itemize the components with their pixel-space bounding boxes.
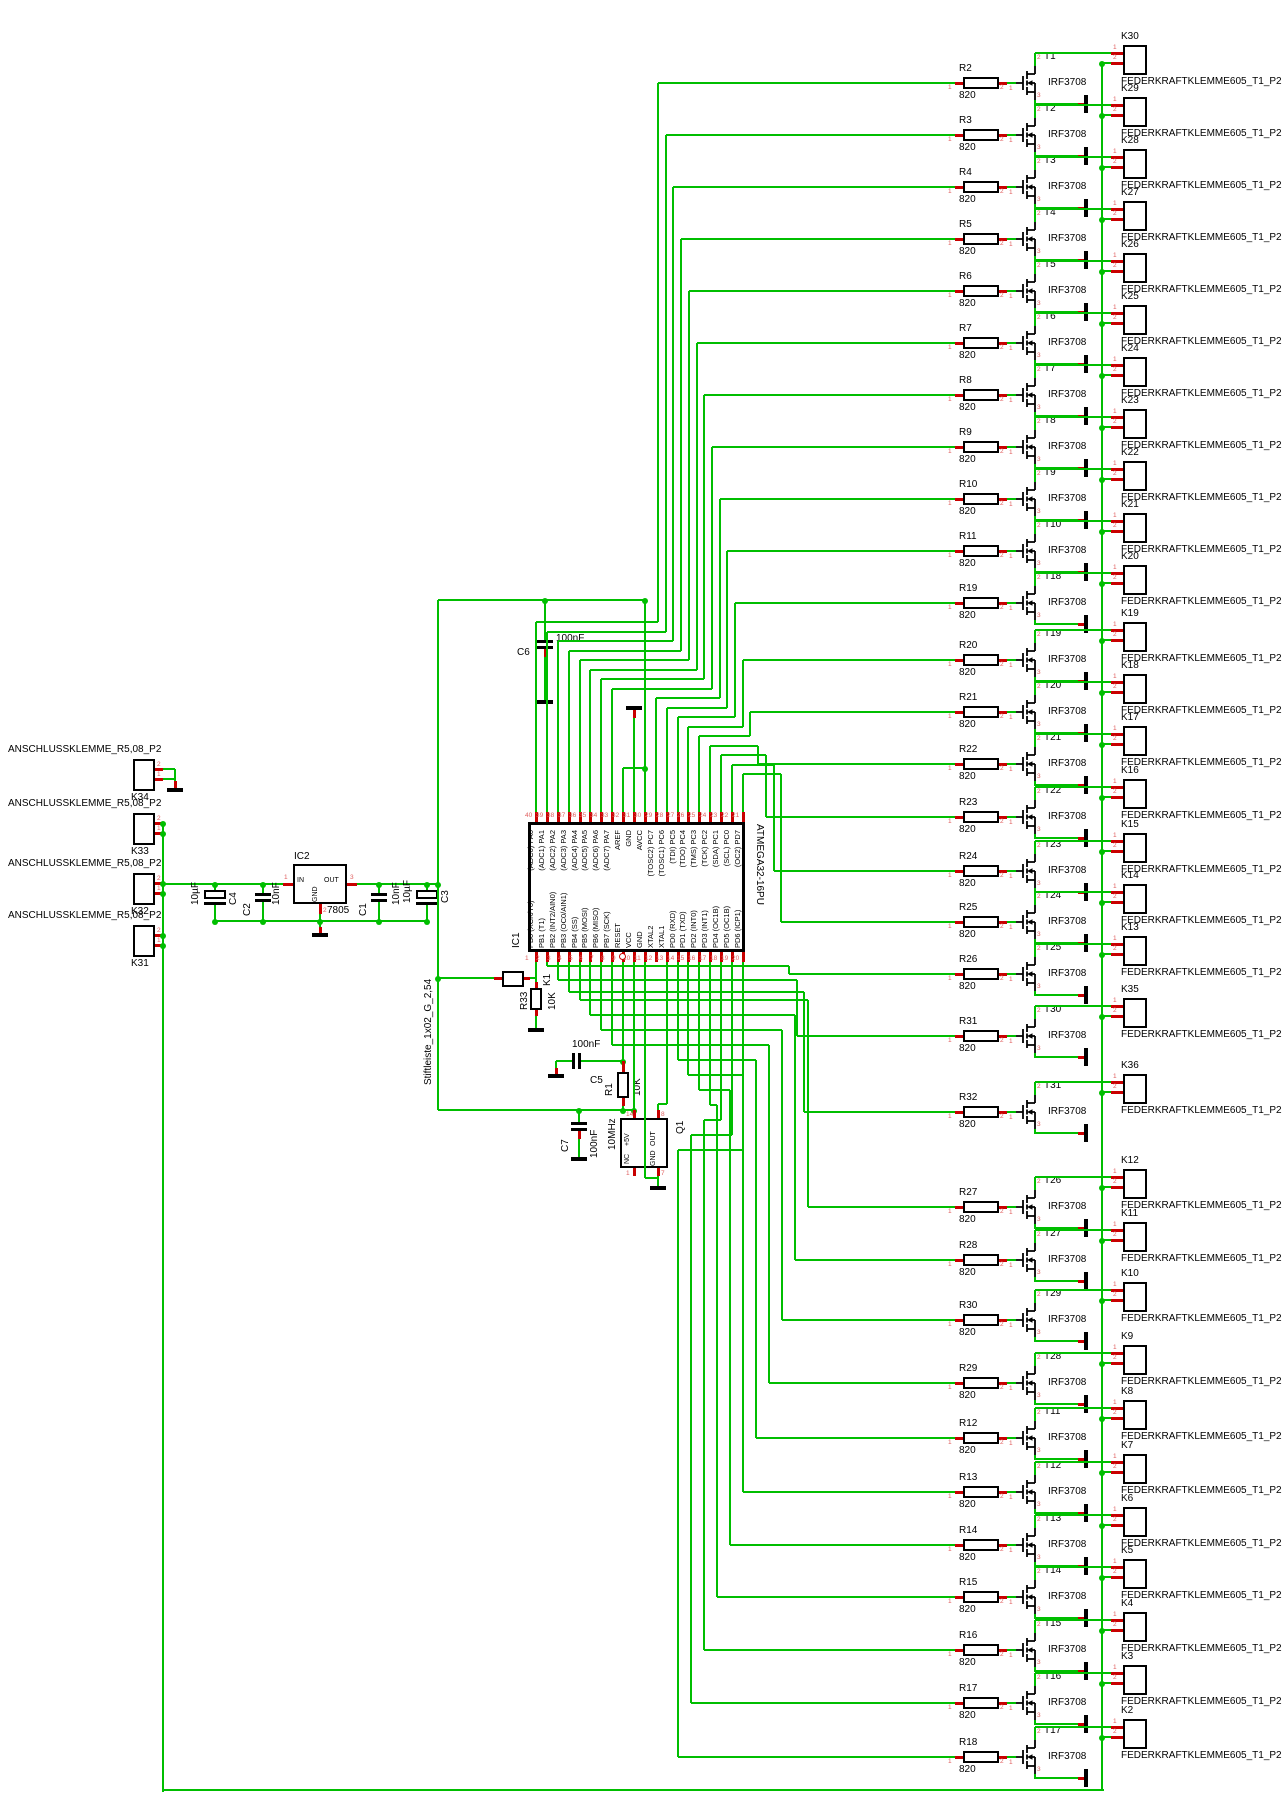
resistor-R19[interactable] (963, 597, 999, 609)
label: PB0 (XCK/T0) (527, 844, 535, 948)
pin-number: 1 (948, 136, 952, 143)
pin-number: 1 (1113, 408, 1117, 415)
pin-number: 2 (1000, 240, 1004, 247)
mosfet-T23[interactable] (1016, 854, 1046, 888)
pin-number: 1 (948, 1439, 952, 1446)
resistor-name: R32 (959, 1093, 977, 1103)
pin-number: 2 (1000, 1598, 1004, 1605)
wire-segment (1035, 733, 1111, 735)
mosfet-T1[interactable] (1016, 66, 1046, 100)
connector-K34[interactable] (133, 759, 155, 791)
pin-number: 1 (1009, 1209, 1013, 1216)
wire-segment (727, 550, 955, 552)
pin-stub (174, 781, 177, 788)
wire-segment (1034, 417, 1036, 430)
label: R1 (605, 1072, 615, 1096)
terminal-K18[interactable] (1123, 674, 1147, 704)
pin-number: 1 (1113, 148, 1117, 155)
junction-dot (1099, 1575, 1105, 1581)
wire-segment (1035, 1461, 1111, 1463)
mosfet-T27[interactable] (1016, 1243, 1046, 1277)
mosfet-T2[interactable] (1016, 118, 1046, 152)
terminal-name: K26 (1121, 240, 1139, 250)
resistor-R11[interactable] (963, 545, 999, 557)
resistor-R17[interactable] (963, 1697, 999, 1709)
pin-stub (1111, 850, 1123, 853)
pin-number: 2 (1113, 893, 1117, 900)
resistor-R8[interactable] (963, 389, 999, 401)
junction-dot (1099, 217, 1105, 223)
mosfet-T29[interactable] (1016, 1303, 1046, 1337)
pin-number: 1 (948, 818, 952, 825)
pin-number: 3 (1037, 773, 1041, 780)
pin-number: 1 (948, 292, 952, 299)
label: XTAL1 (658, 844, 666, 948)
label: PD6 (ICP1) (734, 844, 742, 948)
wire-segment (688, 1074, 743, 1076)
pin-number: 2 (1113, 945, 1117, 952)
mosfet-T10[interactable] (1016, 534, 1046, 568)
gnd-symbol (1084, 1450, 1088, 1468)
label: C4 (229, 879, 239, 905)
pin-number: 2 (1000, 1546, 1004, 1553)
wire-segment (1034, 469, 1036, 482)
terminal-K30[interactable] (1123, 45, 1147, 75)
label: 10MHz (608, 1110, 618, 1150)
wire-segment (1034, 1620, 1036, 1633)
wire-segment (704, 1119, 721, 1121)
pin-stub (657, 1110, 660, 1118)
resistor-R20[interactable] (963, 654, 999, 666)
wire-segment (656, 697, 720, 699)
resistor-R16[interactable] (963, 1644, 999, 1656)
resistor-name: R21 (959, 693, 977, 703)
terminal-K12[interactable] (1123, 1169, 1147, 1199)
terminal-K4[interactable] (1123, 1612, 1147, 1642)
junction-dot (1099, 1628, 1105, 1634)
pin-number: 2 (1037, 1621, 1041, 1628)
pin-number: 32 (612, 812, 619, 819)
mosfet-T13[interactable] (1016, 1528, 1046, 1562)
junction-dot (1099, 638, 1105, 644)
mosfet-T18[interactable] (1016, 586, 1046, 620)
header-k1[interactable] (502, 971, 524, 987)
terminal-K23[interactable] (1123, 409, 1147, 439)
pin-number: 1 (948, 1598, 952, 1605)
pin-number: 1 (1113, 1506, 1117, 1513)
pin-number: 3 (1037, 1554, 1041, 1561)
wire-segment (677, 962, 679, 1060)
pin-number: 2 (1000, 604, 1004, 611)
mosfet-T3[interactable] (1016, 170, 1046, 204)
terminal-K6[interactable] (1123, 1507, 1147, 1537)
wire-segment (696, 343, 698, 670)
pin-stub (1111, 530, 1123, 533)
resistor-R6[interactable] (963, 285, 999, 297)
resistor-R31[interactable] (963, 1030, 999, 1042)
resistor-R26[interactable] (963, 968, 999, 980)
resistor-name: R13 (959, 1473, 977, 1483)
junction-dot (1099, 373, 1105, 379)
pin-stub (1111, 1362, 1123, 1365)
label: 100nF (590, 1122, 600, 1158)
resistor-R14[interactable] (963, 1539, 999, 1551)
resistor-name: R29 (959, 1364, 977, 1374)
pin-number: 2 (1037, 631, 1041, 638)
terminal-K36[interactable] (1123, 1074, 1147, 1104)
terminal-package: FEDERKRAFTKLEMME605_T1_P2 (1121, 389, 1282, 399)
mosfet-T26[interactable] (1016, 1190, 1046, 1224)
mosfet-T12[interactable] (1016, 1475, 1046, 1509)
wire-segment (438, 977, 494, 979)
terminal-package: FEDERKRAFTKLEMME605_T1_P2 (1121, 1751, 1282, 1761)
pin-number: 1 (1113, 304, 1117, 311)
pin-stub (1111, 478, 1123, 481)
resistor-r1[interactable] (617, 1072, 629, 1098)
pin-number: 36 (569, 812, 576, 819)
terminal-K16[interactable] (1123, 779, 1147, 809)
resistor-R5[interactable] (963, 233, 999, 245)
pin-number: 2 (1000, 1261, 1004, 1268)
pin-number: 1 (1113, 1664, 1117, 1671)
wire-segment (1034, 157, 1036, 170)
wire-segment (680, 239, 682, 651)
resistor-R23[interactable] (963, 811, 999, 823)
wire-segment (557, 641, 559, 812)
resistor-R3[interactable] (963, 129, 999, 141)
wire-segment (1035, 786, 1111, 788)
terminal-package: FEDERKRAFTKLEMME605_T1_P2 (1121, 706, 1282, 716)
gnd-symbol (537, 700, 553, 704)
terminal-K3[interactable] (1123, 1665, 1147, 1695)
mosfet-T21[interactable] (1016, 747, 1046, 781)
resistor-R22[interactable] (963, 758, 999, 770)
pin-number: 1 (1009, 85, 1013, 92)
pin-stub (657, 1168, 660, 1176)
resistor-name: R22 (959, 745, 977, 755)
pin-number: 2 (1037, 683, 1041, 690)
terminal-K17[interactable] (1123, 726, 1147, 756)
pin-number: 18 (710, 955, 717, 962)
pin-number: 1 (948, 1113, 952, 1120)
wire-segment (699, 735, 750, 737)
resistor-R32[interactable] (963, 1106, 999, 1118)
wire-segment (1034, 1515, 1036, 1528)
pin-number: 1 (948, 344, 952, 351)
junction-dot (1099, 1298, 1105, 1304)
wire-segment (1034, 1353, 1036, 1366)
pin-number: 1 (948, 1758, 952, 1765)
connector-K33[interactable] (133, 813, 155, 845)
terminal-K25[interactable] (1123, 305, 1147, 335)
transistor-part: IRF3708 (1048, 1202, 1086, 1212)
terminal-package: FEDERKRAFTKLEMME605_T1_P2 (1121, 1106, 1282, 1116)
mosfet-T17[interactable] (1016, 1740, 1046, 1774)
resistor-name: R23 (959, 798, 977, 808)
wire-segment (749, 712, 751, 736)
wire-segment (437, 600, 439, 1110)
wire-segment (804, 1111, 955, 1113)
pin-number: 9 (612, 955, 616, 962)
mosfet-T5[interactable] (1016, 274, 1046, 308)
pin-number: 1 (948, 1493, 952, 1500)
resistor-R10[interactable] (963, 493, 999, 505)
wire-segment (730, 1544, 955, 1546)
pin-number: 2 (1113, 1231, 1117, 1238)
wire-segment (1035, 104, 1111, 106)
resistor-R18[interactable] (963, 1751, 999, 1763)
resistor-R21[interactable] (963, 706, 999, 718)
pin-number: 1 (948, 923, 952, 930)
resistor-R13[interactable] (963, 1486, 999, 1498)
wire-segment (1035, 1056, 1078, 1058)
terminal-K11[interactable] (1123, 1222, 1147, 1252)
mosfet-T31[interactable] (1016, 1095, 1046, 1129)
wire-segment (1035, 1340, 1078, 1342)
pin-stub (955, 659, 963, 662)
regulator-ic2[interactable] (293, 864, 347, 904)
pin-number: 3 (1037, 1269, 1041, 1276)
terminal-package: FEDERKRAFTKLEMME605_T1_P2 (1121, 1314, 1282, 1324)
resistor-R7[interactable] (963, 337, 999, 349)
pin-number: 2 (1037, 945, 1041, 952)
junction-dot (1099, 1470, 1105, 1476)
pin-number: 2 (1000, 1651, 1004, 1658)
terminal-K28[interactable] (1123, 149, 1147, 179)
pin-stub (1111, 743, 1123, 746)
terminal-K22[interactable] (1123, 461, 1147, 491)
terminal-name: K28 (1121, 136, 1139, 146)
mosfet-T30[interactable] (1016, 1019, 1046, 1053)
wire-segment (1034, 1290, 1036, 1303)
wire-segment (766, 816, 955, 818)
wire-segment (547, 965, 789, 967)
terminal-K10[interactable] (1123, 1282, 1147, 1312)
gnd-symbol (1084, 1609, 1088, 1627)
wire-segment (672, 187, 674, 641)
connector-package-label: ANSCHLUSSKLEMME_R5,08_P2 (8, 745, 161, 755)
pin-number: 30 (634, 812, 641, 819)
mosfet-T22[interactable] (1016, 800, 1046, 834)
terminal-K21[interactable] (1123, 513, 1147, 543)
terminal-K15[interactable] (1123, 833, 1147, 863)
pin-number: 3 (1037, 880, 1041, 887)
pin-number: 37 (558, 812, 565, 819)
resistor-R15[interactable] (963, 1591, 999, 1603)
pin-number: 13 (656, 955, 663, 962)
terminal-K24[interactable] (1123, 357, 1147, 387)
pin-number: 1 (1113, 673, 1117, 680)
resistor-name: R27 (959, 1188, 977, 1198)
resistor-R12[interactable] (963, 1432, 999, 1444)
pin-number: 1 (1113, 1221, 1117, 1228)
pin-number: 3 (1037, 1447, 1041, 1454)
mosfet-T11[interactable] (1016, 1421, 1046, 1455)
transistor-part: IRF3708 (1048, 1540, 1086, 1550)
wire-segment (794, 1015, 796, 1260)
pin-stub (955, 921, 963, 924)
pin-number: 2 (1113, 262, 1117, 269)
pin-number: 3 (1037, 1045, 1041, 1052)
pin-number: 20 (732, 955, 739, 962)
mosfet-T9[interactable] (1016, 482, 1046, 516)
wire-segment (703, 1120, 705, 1650)
wire-segment (535, 962, 537, 982)
terminal-K27[interactable] (1123, 201, 1147, 231)
wire-segment (720, 498, 955, 500)
resistor-name: R16 (959, 1631, 977, 1641)
mosfet-T20[interactable] (1016, 695, 1046, 729)
regulator-value: 7805 (327, 906, 349, 916)
wire-segment (742, 660, 744, 727)
wire-segment (611, 689, 613, 812)
pin-number: 2 (1113, 1568, 1117, 1575)
wire-segment (1007, 1756, 1016, 1758)
pin-number: 3 (1037, 1659, 1041, 1666)
label: Q1 (676, 1116, 686, 1134)
mosfet-T16[interactable] (1016, 1686, 1046, 1720)
terminal-K7[interactable] (1123, 1454, 1147, 1484)
pin-number: 1 (948, 1651, 952, 1658)
pin-number: 2 (1000, 923, 1004, 930)
pin-number: 1 (1113, 96, 1117, 103)
wire-segment (688, 291, 690, 660)
resistor-R27[interactable] (963, 1201, 999, 1213)
transistor-part: IRF3708 (1048, 1378, 1086, 1388)
wire-segment (1007, 711, 1016, 713)
pin-number: 2 (1037, 1516, 1041, 1523)
junction-dot (160, 943, 166, 949)
mosfet-T24[interactable] (1016, 905, 1046, 939)
terminal-name: K14 (1121, 871, 1139, 881)
pin-number: 2 (1000, 136, 1004, 143)
resistor-R24[interactable] (963, 865, 999, 877)
junction-dot (435, 976, 441, 982)
resistor-R30[interactable] (963, 1314, 999, 1326)
resistor-R29[interactable] (963, 1377, 999, 1389)
mosfet-T14[interactable] (1016, 1580, 1046, 1614)
resistor-R28[interactable] (963, 1254, 999, 1266)
pin-stub (955, 394, 963, 397)
resistor-R9[interactable] (963, 441, 999, 453)
mosfet-T7[interactable] (1016, 378, 1046, 412)
resistor-name: R26 (959, 955, 977, 965)
terminal-name: K19 (1121, 609, 1139, 619)
wire-segment (1007, 186, 1016, 188)
label: PB6 (MISO) (592, 844, 600, 948)
pin-number: 3 (1037, 826, 1041, 833)
wire-segment (699, 1089, 730, 1091)
resistor-R25[interactable] (963, 916, 999, 928)
pin-number: 2 (1037, 1674, 1041, 1681)
pin-number: 1 (948, 240, 952, 247)
terminal-K5[interactable] (1123, 1559, 1147, 1589)
wire-segment (601, 1029, 782, 1031)
terminal-package: FEDERKRAFTKLEMME605_T1_P2 (1121, 1591, 1282, 1601)
terminal-K13[interactable] (1123, 936, 1147, 966)
terminal-K19[interactable] (1123, 622, 1147, 652)
junction-dot (160, 831, 166, 837)
pin-number: 2 (157, 761, 161, 768)
wire-segment (1035, 681, 1111, 683)
gnd-symbol (1084, 1395, 1088, 1413)
pin-number: 3 (1037, 300, 1041, 307)
terminal-K35[interactable] (1123, 998, 1147, 1028)
wire-segment (808, 1206, 955, 1208)
pin-number: 2 (1037, 1354, 1041, 1361)
terminal-K14[interactable] (1123, 884, 1147, 914)
pin-stub (1111, 953, 1123, 956)
wire-segment (1035, 208, 1111, 210)
capacitor[interactable] (204, 890, 226, 899)
mosfet-T8[interactable] (1016, 430, 1046, 464)
mosfet-T19[interactable] (1016, 643, 1046, 677)
pin-stub (955, 763, 963, 766)
resistor-value: 820 (959, 455, 976, 465)
terminal-K26[interactable] (1123, 253, 1147, 283)
mosfet-T28[interactable] (1016, 1366, 1046, 1400)
pin-number: 8 (661, 1111, 665, 1118)
connector-K31[interactable] (133, 925, 155, 957)
pin-number: 1 (948, 1321, 952, 1328)
wire-segment (1007, 602, 1016, 604)
mosfet-T25[interactable] (1016, 957, 1046, 991)
terminal-name: K4 (1121, 1599, 1133, 1609)
wire-segment (666, 962, 668, 1104)
mosfet-T15[interactable] (1016, 1633, 1046, 1667)
label: RESET (614, 844, 622, 948)
pin-number: 1 (948, 1384, 952, 1391)
connector-K32[interactable] (133, 873, 155, 905)
terminal-K9[interactable] (1123, 1345, 1147, 1375)
wire-segment (782, 1319, 955, 1321)
cap-plate (537, 640, 553, 643)
terminal-name: K9 (1121, 1332, 1133, 1342)
resistor-r33[interactable] (530, 988, 542, 1010)
pin-number: 22 (721, 812, 728, 819)
wire-segment (731, 765, 733, 812)
terminal-K8[interactable] (1123, 1400, 1147, 1430)
terminal-name: K10 (1121, 1269, 1139, 1279)
pin-number: 3 (1037, 1329, 1041, 1336)
transistor-part: IRF3708 (1048, 286, 1086, 296)
resistor-R2[interactable] (963, 77, 999, 89)
wire-segment (1034, 1567, 1036, 1580)
terminal-name: K20 (1121, 552, 1139, 562)
label: IC1 (512, 916, 522, 948)
transistor-part: IRF3708 (1048, 494, 1086, 504)
pin-number: 2 (1037, 1007, 1041, 1014)
terminal-K29[interactable] (1123, 97, 1147, 127)
pin-number: 2 (1113, 574, 1117, 581)
wire-segment (1034, 365, 1036, 378)
terminal-K2[interactable] (1123, 1719, 1147, 1749)
terminal-K20[interactable] (1123, 565, 1147, 595)
mosfet-T4[interactable] (1016, 222, 1046, 256)
pin-number: 1 (1113, 1344, 1117, 1351)
label: GND (312, 872, 319, 902)
wire-segment (1035, 468, 1111, 470)
mosfet-T6[interactable] (1016, 326, 1046, 360)
pin-number: 1 (1009, 1322, 1013, 1329)
gnd-symbol (1084, 1504, 1088, 1522)
wire-segment (797, 1035, 955, 1037)
terminal-package: FEDERKRAFTKLEMME605_T1_P2 (1121, 545, 1282, 555)
pin-stub (955, 1319, 963, 1322)
pin-number: 1 (1009, 1440, 1013, 1447)
pin-number: 3 (1037, 1606, 1041, 1613)
resistor-R4[interactable] (963, 181, 999, 193)
